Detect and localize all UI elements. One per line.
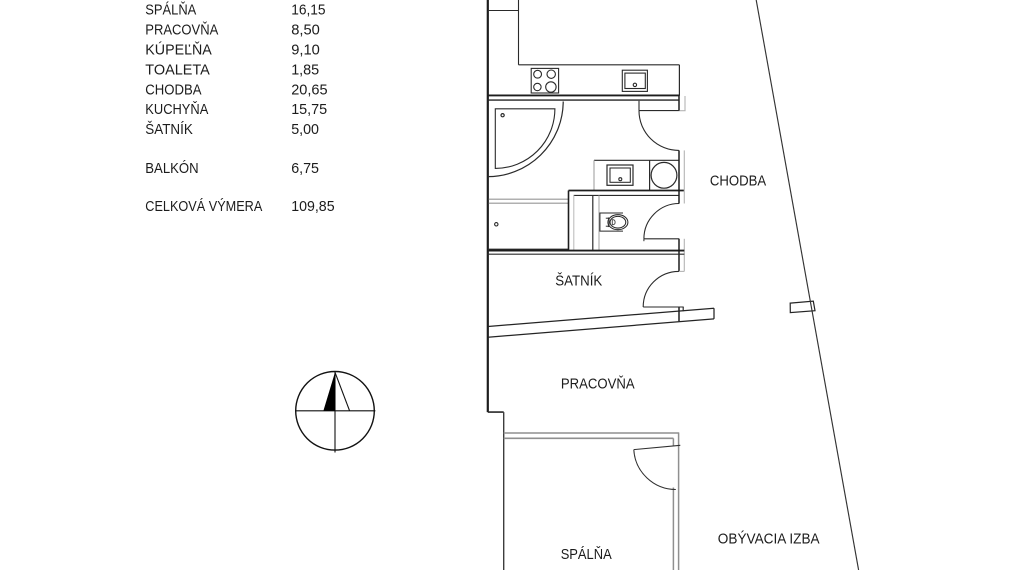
svg-text:ŠATNÍK: ŠATNÍK: [555, 273, 602, 290]
svg-text:OBÝVACIA IZBA: OBÝVACIA IZBA: [718, 531, 820, 548]
svg-text:SPÁLŇA: SPÁLŇA: [561, 546, 612, 563]
svg-text:8,50: 8,50: [291, 22, 320, 39]
svg-text:15,75: 15,75: [291, 101, 327, 118]
svg-text:TOALETA: TOALETA: [145, 61, 210, 78]
svg-text:KUCHYŇA: KUCHYŇA: [145, 101, 208, 118]
svg-text:PRACOVŇA: PRACOVŇA: [145, 22, 218, 39]
svg-text:1,85: 1,85: [291, 61, 319, 78]
svg-text:CELKOVÁ VÝMERA: CELKOVÁ VÝMERA: [145, 198, 262, 215]
svg-text:CHODBA: CHODBA: [710, 172, 766, 189]
svg-text:6,75: 6,75: [291, 160, 319, 177]
svg-text:KÚPEĽŇA: KÚPEĽŇA: [145, 42, 212, 59]
svg-text:20,65: 20,65: [291, 81, 327, 98]
svg-text:BALKÓN: BALKÓN: [145, 160, 198, 177]
svg-text:109,85: 109,85: [291, 198, 334, 215]
svg-text:9,10: 9,10: [291, 42, 320, 59]
svg-text:PRACOVŇA: PRACOVŇA: [561, 376, 635, 393]
svg-text:ŠATNÍK: ŠATNÍK: [145, 121, 193, 138]
svg-text:SPÁLŇA: SPÁLŇA: [145, 2, 196, 19]
svg-text:CHODBA: CHODBA: [145, 81, 201, 98]
svg-text:5,00: 5,00: [291, 121, 319, 138]
svg-text:16,15: 16,15: [291, 2, 325, 19]
